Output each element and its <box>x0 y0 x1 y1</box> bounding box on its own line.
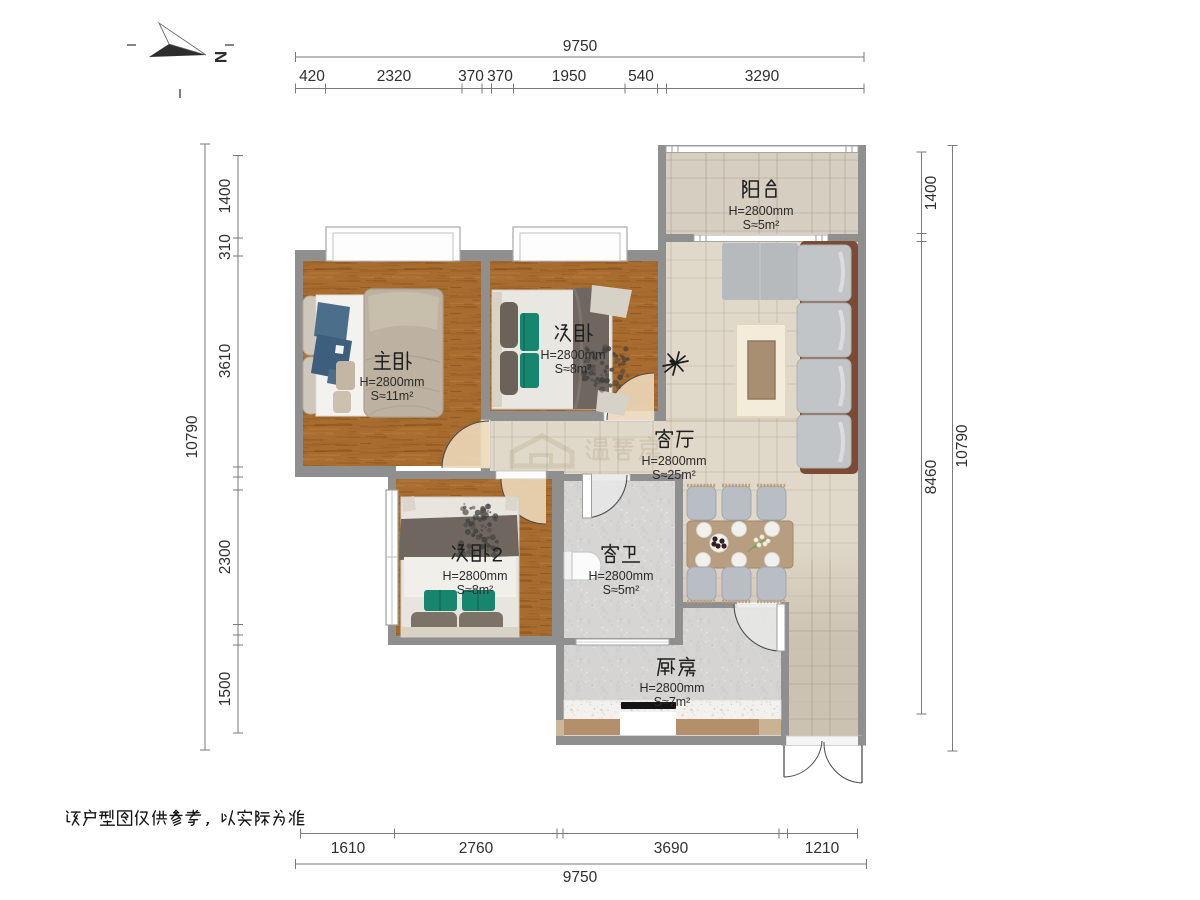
svg-text:9750: 9750 <box>563 869 598 886</box>
svg-text:1950: 1950 <box>552 68 587 85</box>
svg-text:S≈5m²: S≈5m² <box>743 218 780 232</box>
svg-text:S≈8m²: S≈8m² <box>555 362 592 376</box>
svg-text:8460: 8460 <box>923 459 940 494</box>
svg-text:S≈8m²: S≈8m² <box>457 583 494 597</box>
svg-text:1500: 1500 <box>217 671 234 706</box>
svg-text:H=2800mm: H=2800mm <box>640 681 705 695</box>
svg-text:3290: 3290 <box>745 68 780 85</box>
svg-text:H=2800mm: H=2800mm <box>541 348 606 362</box>
svg-text:H=2800mm: H=2800mm <box>443 569 508 583</box>
svg-text:H=2800mm: H=2800mm <box>642 454 707 468</box>
svg-text:9750: 9750 <box>563 38 598 55</box>
svg-text:420: 420 <box>299 68 325 85</box>
svg-text:3690: 3690 <box>654 840 689 857</box>
svg-text:H=2800mm: H=2800mm <box>729 204 794 218</box>
svg-text:1210: 1210 <box>805 840 840 857</box>
svg-text:H=2800mm: H=2800mm <box>589 569 654 583</box>
svg-text:370: 370 <box>487 68 513 85</box>
svg-text:1610: 1610 <box>331 840 366 857</box>
svg-text:2: 2 <box>492 544 503 566</box>
svg-text:310: 310 <box>217 234 234 260</box>
svg-text:3610: 3610 <box>217 343 234 378</box>
svg-text:S≈5m²: S≈5m² <box>603 583 640 597</box>
svg-text:S≈25m²: S≈25m² <box>652 468 696 482</box>
svg-text:1400: 1400 <box>923 175 940 210</box>
svg-text:2760: 2760 <box>459 840 494 857</box>
svg-text:2320: 2320 <box>377 68 412 85</box>
svg-text:2300: 2300 <box>217 539 234 574</box>
svg-text:10790: 10790 <box>954 424 971 467</box>
svg-text:H=2800mm: H=2800mm <box>360 375 425 389</box>
svg-text:370: 370 <box>458 68 484 85</box>
svg-text:N: N <box>211 51 230 63</box>
svg-text:10790: 10790 <box>184 415 201 458</box>
svg-text:S≈7m²: S≈7m² <box>654 695 691 709</box>
svg-text:S≈11m²: S≈11m² <box>371 389 414 403</box>
svg-text:1400: 1400 <box>217 178 234 213</box>
svg-text:540: 540 <box>628 68 654 85</box>
